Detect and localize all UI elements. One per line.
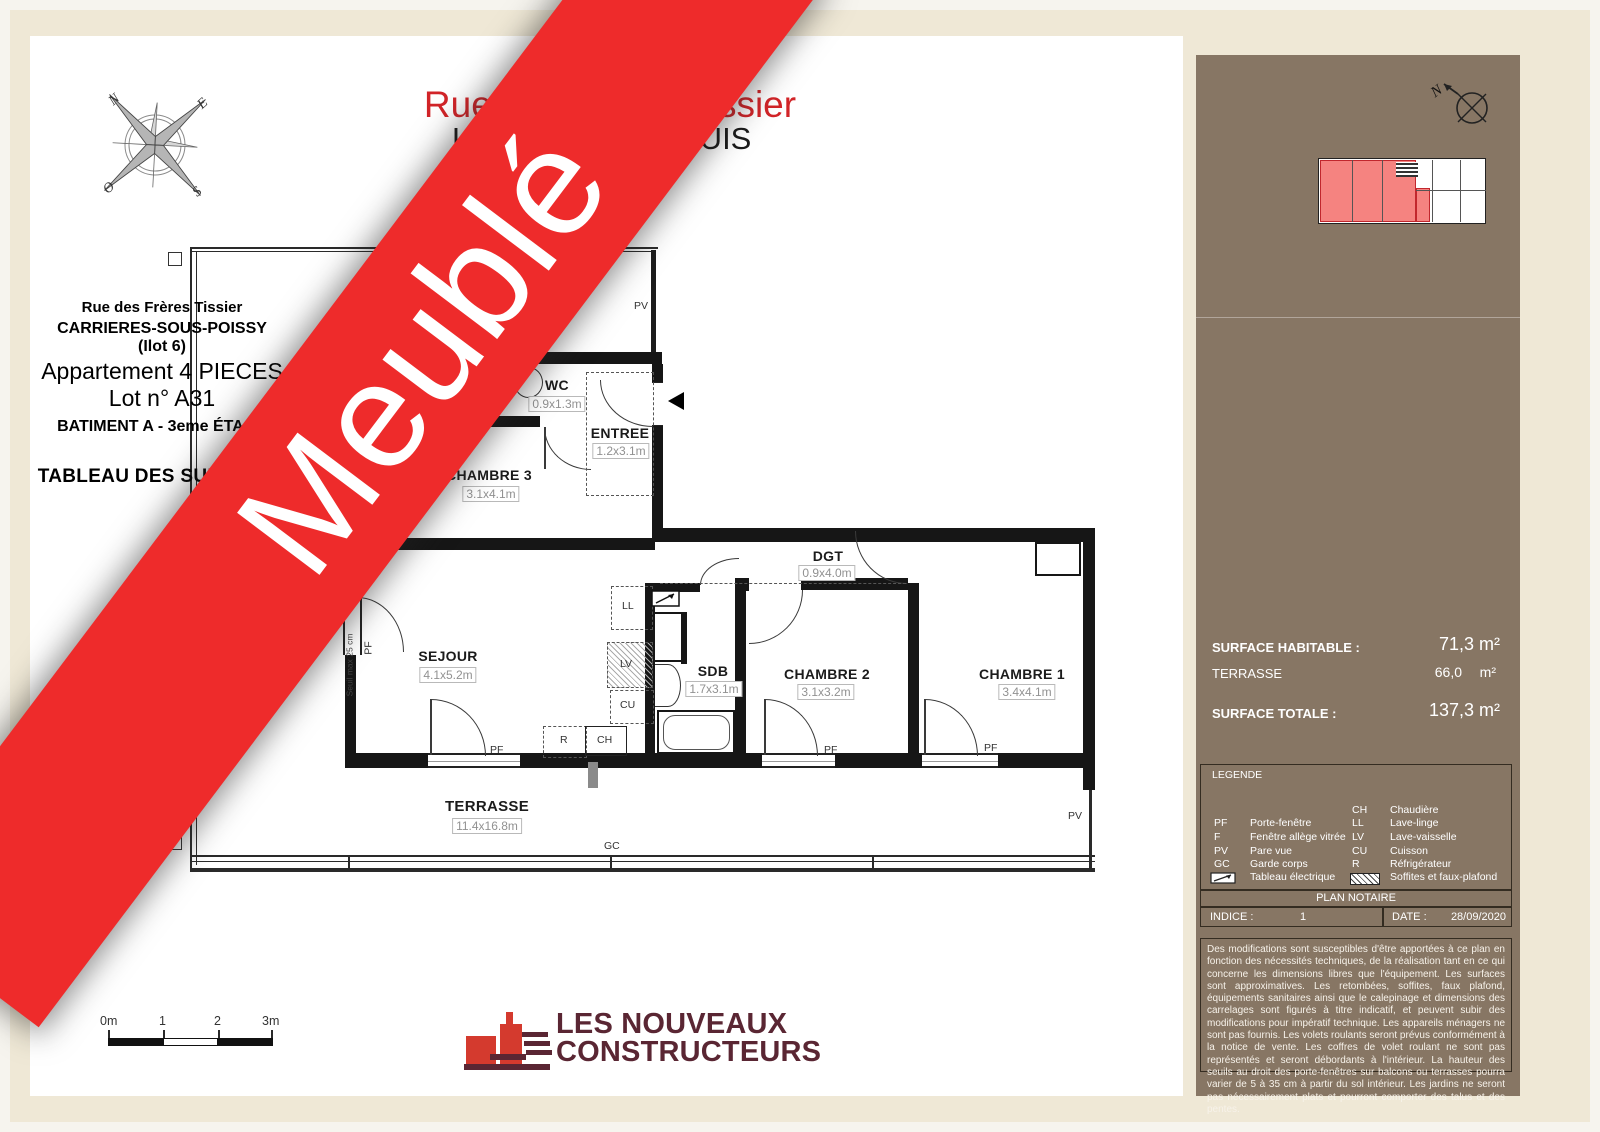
keymap-stair-core [1396,162,1418,177]
railing-line-3 [190,868,1095,872]
scale-3m: 3m [262,1014,279,1028]
sidebar-divider [1196,317,1520,318]
tableau-electrique-icon [651,590,680,607]
pare-vue-right-line [1089,790,1092,868]
room-label-sejour: SEJOUR [418,648,477,664]
room-label-dgt: DGT [813,548,843,564]
room-label-sdb: SDB [698,663,728,679]
chambre1-niche [1035,542,1081,576]
room-label-chambre2: CHAMBRE 2 [784,666,870,682]
legend-abbr: PF [1214,817,1227,829]
legend-abbr: R [1352,858,1360,870]
door-leaf-chambre1-pf [924,699,926,755]
legend-soffites-label: Soffites et faux-plafond [1390,871,1497,883]
legend-label: Porte-fenêtre [1250,817,1311,829]
keymap-interior-line [1416,190,1486,191]
pf-label-sejour: PF [490,744,503,756]
totale-label: SURFACE TOTALE : [1212,706,1336,721]
room-dims-wc: 0.9x1.3m [528,396,585,412]
scale-segment-black [108,1038,163,1046]
legend-label: Lave-vaisselle [1390,831,1457,843]
keymap-interior-line [1352,160,1353,222]
ll-label: LL [622,600,634,612]
legend-abbr: LL [1352,817,1364,829]
room-dims-chambre3: 3.1x4.1m [462,486,519,502]
legend-soffites-icon [1350,873,1380,885]
wall-section-marker [588,762,598,788]
sidebar-street: Rue des Frères Tissier [0,299,324,316]
legend-label: Réfrigérateur [1390,858,1451,870]
date-value: 28/09/2020 [1432,911,1506,923]
room-label-terrasse: TERRASSE [445,798,529,815]
pf-label-chambre2: PF [824,744,837,756]
legend-label: Cuisson [1390,845,1428,857]
keymap-interior-line [1460,160,1461,222]
terrasse-value: 66,0 [1400,664,1462,680]
sidebar-city: CARRIERES-SOUS-POISSY [0,320,324,338]
railing-tick [348,855,350,872]
pv-label-top: PV [634,300,648,312]
habitable-label: SURFACE HABITABLE : [1212,640,1360,655]
wall-chambre2-chambre1 [908,583,919,755]
legend-abbr: PV [1214,845,1228,857]
door-leaf-sejour-pf [430,699,432,755]
room-dims-chambre2: 3.1x3.2m [797,684,854,700]
sdb-washbasin [655,664,681,707]
scale-segment-white [163,1038,218,1046]
r-label: R [560,734,568,746]
gc-label: GC [604,840,620,852]
scale-segment-black [218,1038,273,1046]
chambre3-door-opening [540,416,588,427]
room-dims-terrasse: 11.4x16.8m [452,818,522,834]
legend-label: Lave-linge [1390,817,1438,829]
indice-date-divider [1382,907,1384,927]
legend-abbr: CU [1352,845,1367,857]
habitable-value: 71,3 m² [1400,634,1500,655]
legend-title: LEGENDE [1212,769,1262,781]
legend-tableau-icon [1210,872,1236,884]
door-leaf-chambre2-pf [764,699,766,755]
sdb-shower-wall [681,612,687,664]
legend-label: Garde corps [1250,858,1308,870]
seuil-note: Seuil max 25 cm [344,634,354,697]
disclaimer-text: Des modifications sont susceptibles d'êt… [1200,938,1512,1072]
logo-line1: LES NOUVEAUX [556,1010,787,1039]
wall-east [1083,528,1095,790]
indice-value: 1 [1300,911,1306,923]
legend-tableau-label: Tableau électrique [1250,871,1335,883]
room-dims-sdb: 1.7x3.1m [685,681,742,697]
legend-label: Pare vue [1250,845,1292,857]
entrance-arrow-icon [668,392,684,410]
pf-label-sejour-left: PF [363,641,375,654]
totale-value: 137,3 m² [1392,700,1500,721]
railing-tick [610,855,612,872]
keymap-n-label: N [1428,81,1446,101]
keymap-compass-icon: N [1428,78,1494,132]
terrasse-unit: m² [1466,664,1496,680]
bathtub-inner [663,715,730,750]
legend-abbr: CH [1352,804,1367,816]
keymap-interior-line [1382,160,1383,222]
room-label-wc: WC [545,377,569,393]
railing-line-2 [190,861,1095,862]
railing-tick [872,855,874,872]
wall-end-marker [168,252,182,266]
legend-label: Fenêtre allège vitrée [1250,831,1346,843]
railing-line-1 [190,855,1095,857]
pf-label-chambre1: PF [984,742,997,754]
room-label-entree: ENTREE [591,425,650,441]
room-dims-entree: 1.2x3.1m [592,443,649,459]
door-leaf-chambre3 [544,427,546,469]
dgt-faux-plafond-line [660,583,906,584]
pare-vue-screen [651,250,656,356]
keymap-highlight-red-ext [1416,188,1430,222]
legend-abbr: F [1214,831,1220,843]
builder-logo-icon [460,1008,552,1072]
legend-abbr: GC [1214,858,1230,870]
room-dims-dgt: 0.9x4.0m [798,565,855,581]
ch-label: CH [597,734,612,746]
terrasse-label: TERRASSE [1212,666,1282,681]
room-dims-sejour: 4.1x5.2m [419,667,476,683]
lv-label: LV [620,658,632,670]
scale-2: 2 [214,1014,221,1028]
pv-label-right: PV [1068,810,1082,822]
plan-notaire-bar: PLAN NOTAIRE [1200,890,1512,907]
indice-label: INDICE : [1210,911,1253,923]
wall-sdb-chambre2 [735,583,746,755]
sidebar-ilot: (Ilot 6) [0,338,324,356]
legend-label: Chaudière [1390,804,1438,816]
room-dims-chambre1: 3.4x4.1m [998,684,1055,700]
scale-0m: 0m [100,1014,117,1028]
keymap-interior-line [1432,160,1433,222]
cu-label: CU [620,699,635,711]
scale-1: 1 [159,1014,166,1028]
date-label: DATE : [1392,911,1427,923]
legend-abbr: LV [1352,831,1364,843]
room-label-chambre1: CHAMBRE 1 [979,666,1065,682]
logo-line2: CONSTRUCTEURS [556,1038,821,1067]
sdb-shower-closet [653,612,683,662]
